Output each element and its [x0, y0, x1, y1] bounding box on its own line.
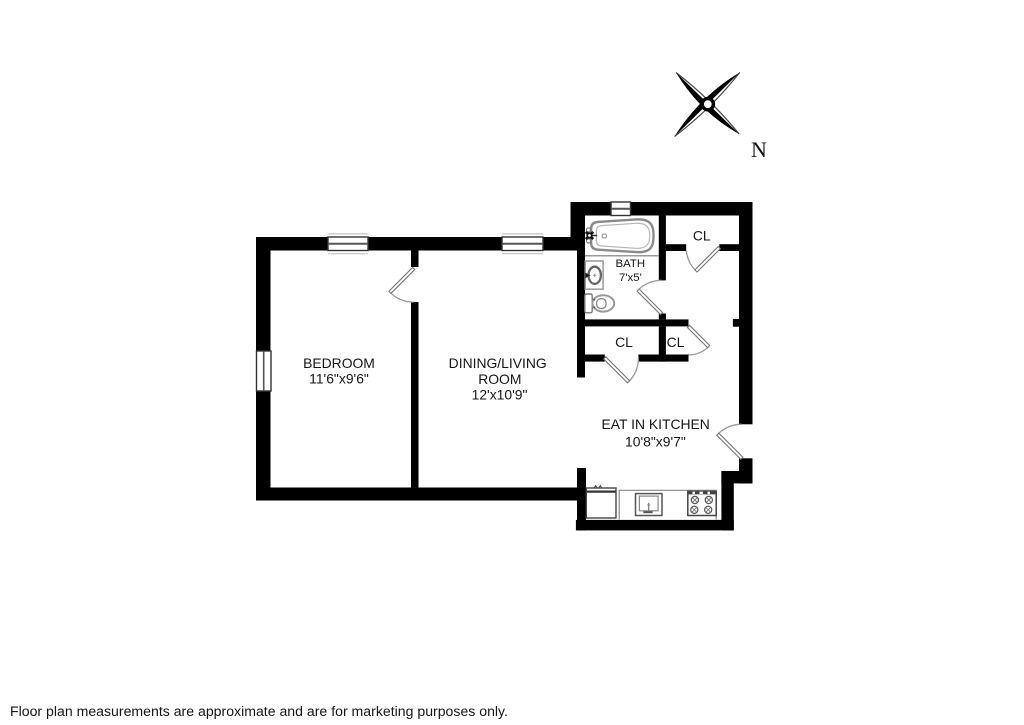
svg-text:Floor plan measurements are ap: Floor plan measurements are approximate …	[10, 703, 508, 719]
svg-text:12'x10'9": 12'x10'9"	[472, 387, 528, 403]
svg-text:CL: CL	[693, 227, 711, 243]
svg-text:BATH: BATH	[616, 258, 646, 270]
svg-text:EAT IN KITCHEN: EAT IN KITCHEN	[602, 416, 710, 432]
svg-text:CL: CL	[667, 334, 685, 350]
svg-text:11'6"x9'6": 11'6"x9'6"	[309, 371, 369, 387]
svg-text:N: N	[751, 137, 767, 162]
svg-text:DINING/LIVING: DINING/LIVING	[449, 355, 547, 371]
svg-text:BEDROOM: BEDROOM	[303, 355, 375, 371]
svg-text:CL: CL	[615, 334, 633, 350]
svg-text:7'x5': 7'x5'	[619, 272, 642, 284]
svg-text:ROOM: ROOM	[478, 371, 521, 387]
svg-text:10'8"x9'7": 10'8"x9'7"	[625, 434, 686, 450]
